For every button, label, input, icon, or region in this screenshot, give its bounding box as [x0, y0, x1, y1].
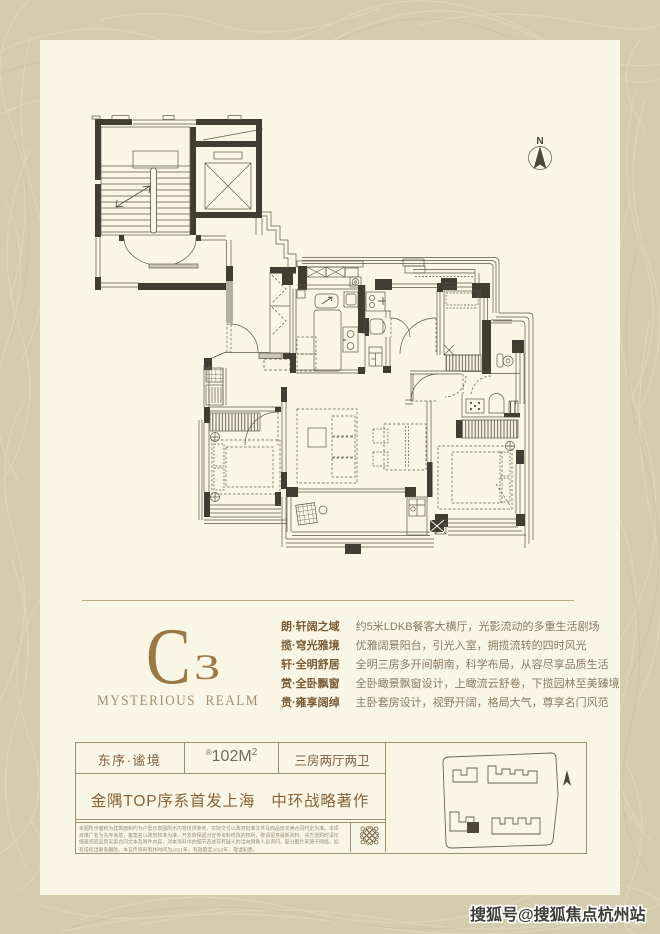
svg-text:N: N: [536, 136, 543, 147]
